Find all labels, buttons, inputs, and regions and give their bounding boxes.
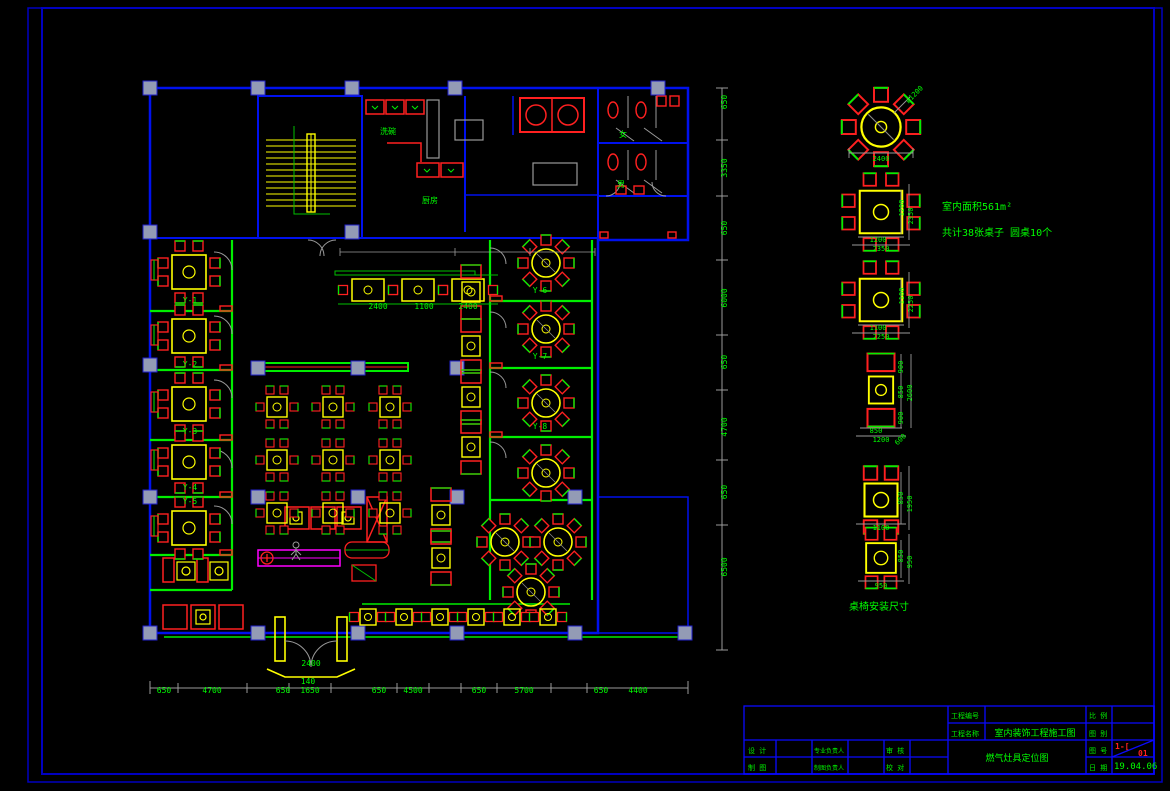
svg-text:2250: 2250: [907, 296, 915, 313]
svg-text:650: 650: [720, 355, 729, 370]
svg-text:650: 650: [157, 686, 172, 695]
type-label: 图 别: [1089, 729, 1107, 738]
svg-text:Y-6: Y-6: [533, 286, 548, 295]
svg-text:950: 950: [906, 556, 914, 569]
svg-text:900: 900: [897, 412, 905, 425]
svg-text:140: 140: [301, 677, 316, 686]
drawing-title: 燃气灶具定位图: [985, 752, 1048, 764]
svg-text:1950: 1950: [906, 496, 914, 513]
svg-text:2350: 2350: [907, 208, 915, 225]
cad-drawing-sheet: 洗碗厨房女男Y-1Y-2Y-3Y-4Y-5Y-6Y-7Y-82400140240…: [0, 0, 1170, 791]
booth-tables: [431, 265, 481, 585]
svg-text:厨房: 厨房: [422, 195, 438, 205]
svg-text:2400: 2400: [301, 659, 320, 668]
legend-title: 桌椅安装尺寸: [849, 600, 909, 613]
tb-r1c1: 设 计: [748, 746, 766, 755]
project-name-value: 室内装饰工程施工图: [994, 727, 1075, 739]
svg-text:Y-1: Y-1: [183, 296, 198, 305]
svg-text:650: 650: [594, 686, 609, 695]
kitchen-fixtures: [366, 98, 584, 185]
svg-text:6500: 6500: [720, 557, 729, 576]
title-block: 工程编号 工程名称 室内装饰工程施工图 比 例 图 别 设 计 专业负责人 审 …: [744, 706, 1157, 774]
svg-text:Y-4: Y-4: [183, 483, 198, 492]
project-no-label: 工程编号: [951, 711, 979, 720]
svg-text:洗碗: 洗碗: [380, 126, 396, 136]
date-value: 19.04.06: [1114, 762, 1157, 772]
svg-text:2350: 2350: [873, 245, 890, 253]
svg-text:3350: 3350: [720, 158, 729, 177]
svg-text:850: 850: [897, 492, 905, 505]
svg-text:1200: 1200: [873, 436, 890, 444]
svg-text:650: 650: [276, 686, 291, 695]
svg-text:1200: 1200: [898, 200, 906, 217]
svg-text:2400: 2400: [458, 302, 477, 311]
legend-square8-tables: [842, 173, 920, 339]
sheet-frame: [28, 8, 1162, 782]
tb-r1c2: 专业负责人: [814, 747, 844, 755]
svg-text:Y-7: Y-7: [533, 352, 548, 361]
scale-label: 比 例: [1089, 711, 1107, 720]
project-name-label: 工程名称: [951, 729, 979, 738]
svg-text:4700: 4700: [720, 417, 729, 436]
svg-text:2250: 2250: [873, 333, 890, 341]
svg-text:5700: 5700: [514, 686, 533, 695]
svg-text:男: 男: [617, 180, 625, 189]
svg-text:850: 850: [870, 427, 883, 435]
svg-text:Y-3: Y-3: [183, 427, 198, 436]
sheet-no-value-2: 01: [1138, 749, 1148, 758]
svg-text:650: 650: [720, 221, 729, 236]
svg-text:950: 950: [875, 582, 888, 590]
svg-text:1650: 1650: [300, 686, 319, 695]
svg-text:650: 650: [720, 485, 729, 500]
svg-text:4400: 4400: [628, 686, 647, 695]
svg-text:2600: 2600: [906, 385, 914, 402]
furniture-legend: ø120024001200235012002350110022501100225…: [842, 84, 925, 590]
svg-text:Y-5: Y-5: [183, 497, 198, 506]
svg-text:650: 650: [472, 686, 487, 695]
cad-canvas: 洗碗厨房女男Y-1Y-2Y-3Y-4Y-5Y-6Y-7Y-82400140240…: [0, 0, 1170, 791]
svg-text:Y-8: Y-8: [533, 422, 548, 431]
svg-text:600: 600: [893, 432, 908, 447]
svg-text:女: 女: [619, 129, 627, 139]
tb-r2c3: 校 对: [886, 763, 904, 772]
svg-text:6000: 6000: [720, 288, 729, 307]
area-note-2: 共计38张桌子 圆桌10个: [942, 226, 1052, 239]
tb-r1c3: 审 核: [886, 746, 904, 755]
sheet-no-label: 图 号: [1089, 747, 1107, 755]
dimension-lines: [150, 88, 728, 694]
right-dimensions: 6503350650600065047006506500: [720, 95, 729, 577]
svg-text:1100: 1100: [414, 302, 433, 311]
svg-text:ø1200: ø1200: [904, 84, 925, 105]
svg-text:1100: 1100: [898, 288, 906, 305]
svg-text:1100: 1100: [870, 324, 887, 332]
svg-text:900: 900: [897, 361, 905, 374]
bottom-dimensions: 65047006501650650450065057006504400: [157, 686, 648, 695]
area-note-1: 室内面积561m²: [942, 200, 1012, 213]
svg-text:650: 650: [372, 686, 387, 695]
legend-booth: [868, 354, 895, 427]
date-label: 日 期: [1089, 764, 1107, 772]
svg-text:850: 850: [897, 550, 905, 563]
svg-text:Y-2: Y-2: [183, 360, 198, 369]
svg-text:4500: 4500: [403, 686, 422, 695]
private-room-tables: [158, 241, 220, 559]
svg-text:850: 850: [897, 386, 905, 399]
svg-text:4700: 4700: [202, 686, 221, 695]
svg-text:1100: 1100: [873, 524, 890, 532]
floorplan-walls: [150, 88, 688, 633]
svg-text:1200: 1200: [870, 236, 887, 244]
tb-r2c1: 制 图: [748, 763, 766, 772]
svg-text:2400: 2400: [368, 302, 387, 311]
tb-r2c2: 制图负责人: [814, 764, 844, 772]
sheet-no-value: 1-[: [1115, 742, 1129, 751]
entrance: [267, 617, 355, 677]
svg-text:2400: 2400: [873, 155, 890, 163]
staircase: [266, 126, 356, 214]
svg-text:650: 650: [720, 95, 729, 110]
